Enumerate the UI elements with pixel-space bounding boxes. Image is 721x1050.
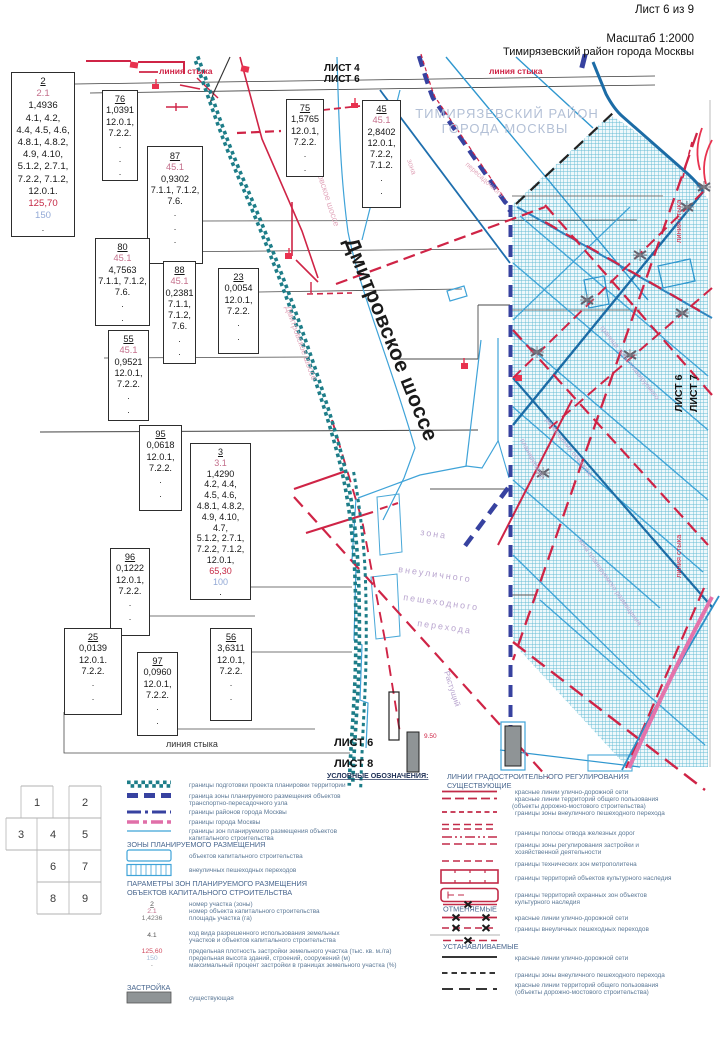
svg-text:граница зоны планируемого разм: граница зоны планируемого размещения объ… [189,792,341,800]
svg-text:зона: зона [405,158,419,177]
svg-text:ПАРАМЕТРЫ ЗОН ПЛАНИРУЕМОГО РАЗ: ПАРАМЕТРЫ ЗОН ПЛАНИРУЕМОГО РАЗМЕЩЕНИЯ [127,879,307,888]
svg-text:Тимирязевский район города Мос: Тимирязевский район города Москвы [503,46,694,58]
svg-text:красные линии территорий общег: красные линии территорий общего пользова… [515,981,659,989]
svg-text:7: 7 [82,861,88,873]
svg-text:4: 4 [50,829,56,841]
svg-text:границы зоны внеуличного пешех: границы зоны внеуличного пешеходного пер… [515,972,665,979]
svg-text:ОБЪЕКТОВ КАПИТАЛЬНОГО СТРОИТЕЛ: ОБЪЕКТОВ КАПИТАЛЬНОГО СТРОИТЕЛЬСТВА [127,888,292,897]
svg-text:внеуличного: внеуличного [398,564,473,584]
svg-text:ЗОНЫ ПЛАНИРУЕМОГО РАЗМЕЩЕНИЯ: ЗОНЫ ПЛАНИРУЕМОГО РАЗМЕЩЕНИЯ [127,840,265,849]
svg-text:культурного наследия: культурного наследия [515,899,580,906]
svg-text:предельная высота зданий, стро: предельная высота зданий, строений, соор… [189,954,350,962]
svg-text:9: 9 [82,893,88,905]
svg-text:ЛИСТ 6: ЛИСТ 6 [334,737,373,749]
svg-text:УСТАНАВЛИВАЕМЫЕ: УСТАНАВЛИВАЕМЫЕ [443,942,519,951]
svg-text:(объекты дорожно-мостового стр: (объекты дорожно-мостового строительства… [515,988,649,996]
svg-text:8: 8 [50,893,56,905]
svg-text:перехода: перехода [417,618,473,636]
svg-text:.: . [151,961,153,968]
svg-text:предельная плотность застройки: предельная плотность застройки земельног… [189,947,391,955]
svg-text:9.50: 9.50 [424,733,437,740]
svg-text:2: 2 [82,797,88,809]
svg-text:хозяйственной деятельности: хозяйственной деятельности [515,848,602,856]
svg-text:границы зоны внеуличного пешех: границы зоны внеуличного пешеходного пер… [515,810,665,817]
svg-text:1: 1 [34,797,40,809]
svg-text:ТИМИРЯЗЕВСКИЙ РАЙОН: ТИМИРЯЗЕВСКИЙ РАЙОН [415,106,599,121]
svg-text:границы районов города Москвы: границы районов города Москвы [189,808,287,816]
svg-text:границы подготовки проекта пла: границы подготовки проекта планировки те… [189,782,346,789]
svg-text:код вида разрешенного использо: код вида разрешенного использования земе… [189,930,340,937]
svg-text:границы полосы отвода железных: границы полосы отвода железных дорог [515,830,636,837]
svg-text:ЛИСТ 4: ЛИСТ 4 [324,63,360,74]
svg-text:пешеходного: пешеходного [403,592,480,613]
svg-text:существующая: существующая [189,995,234,1002]
svg-text:линия стыка: линия стыка [489,66,543,76]
svg-text:ЛИСТ 8: ЛИСТ 8 [334,758,373,770]
svg-text:границы территорий охранных зо: границы территорий охранных зон объектов [515,891,647,899]
svg-text:УСЛОВНЫЕ ОБОЗНАЧЕНИЯ:: УСЛОВНЫЕ ОБОЗНАЧЕНИЯ: [327,772,428,780]
svg-text:СУЩЕСТВУЮЩИЕ: СУЩЕСТВУЮЩИЕ [447,781,512,790]
svg-text:ЛИСТ 6: ЛИСТ 6 [324,74,360,85]
svg-text:максимальный процент застройки: максимальный процент застройки в граница… [189,961,397,969]
svg-text:красные линии улично-дорожной: красные линии улично-дорожной сети [515,914,629,922]
svg-text:ЛИСТ 7: ЛИСТ 7 [688,374,700,412]
svg-text:Масштаб 1:2000: Масштаб 1:2000 [606,33,694,45]
svg-text:линия стыка: линия стыка [159,66,213,76]
svg-text:ЛИНИИ ГРАДОСТРОИТЕЛЬНОГО РЕГУЛ: ЛИНИИ ГРАДОСТРОИТЕЛЬНОГО РЕГУЛИРОВАНИЯ [447,772,629,781]
svg-text:границы территорий объектов ку: границы территорий объектов культурного … [515,874,672,882]
svg-text:площадь участка (га): площадь участка (га) [189,915,252,922]
svg-text:125,60: 125,60 [142,948,163,955]
svg-text:линия стыка: линия стыка [674,534,683,578]
svg-text:участков и объектов капитально: участков и объектов капитального строите… [189,936,336,944]
svg-text:линия стыка: линия стыка [674,199,683,243]
svg-text:границы внеуличных пешеходных: границы внеуличных пешеходных переходов [515,926,649,933]
svg-text:границы зон планируемого разме: границы зон планируемого размещения объе… [189,827,338,835]
svg-text:границы зоны регулирования зас: границы зоны регулирования застройки и [515,841,639,849]
svg-text:номер объекта капитального стр: номер объекта капитального строительства [189,907,320,915]
svg-text:3: 3 [18,829,24,841]
svg-text:4.1: 4.1 [147,932,157,939]
svg-text:номер участка (зоны): номер участка (зоны) [189,901,253,908]
svg-text:Дмитровское шоссе: Дмитровское шоссе [339,234,442,444]
svg-text:границы технических зон метроп: границы технических зон метрополитена [515,861,637,868]
svg-text:красные линии территорий общег: красные линии территорий общего пользова… [515,795,659,803]
svg-text:2: 2 [150,901,154,908]
svg-text:Лист 6 из 9: Лист 6 из 9 [635,4,694,16]
svg-text:ЛИСТ 6: ЛИСТ 6 [673,374,685,412]
svg-text:линия стыка: линия стыка [166,739,218,749]
svg-text:границы города Москвы: границы города Москвы [189,819,261,826]
svg-text:6: 6 [50,861,56,873]
svg-text:5: 5 [82,829,88,841]
svg-text:красные линии улично-дорожной: красные линии улично-дорожной сети [515,954,629,962]
svg-text:(объекты дорожно-мостового стр: (объекты дорожно-мостового строительства… [512,802,646,810]
svg-text:объектов капитального строител: объектов капитального строительства [189,852,303,860]
svg-text:красные линии улично-дорожной: красные линии улично-дорожной сети [515,788,629,796]
svg-text:Растущий: Растущий [442,670,462,708]
svg-text:ЗАСТРОЙКА: ЗАСТРОЙКА [127,983,170,992]
svg-text:транспортно-пересадочного узла: транспортно-пересадочного узла [189,800,288,807]
svg-text:пересадочного: пересадочного [464,161,505,199]
svg-text:1,4236: 1,4236 [142,915,163,922]
svg-text:Дмитровское шоссе: Дмитровское шоссе [283,304,319,382]
svg-text:ГОРОДА МОСКВЫ: ГОРОДА МОСКВЫ [442,121,569,136]
svg-text:внеуличных пешеходных переходо: внеуличных пешеходных переходов [189,867,297,874]
svg-text:2.1: 2.1 [147,908,157,915]
svg-text:зона: зона [420,527,448,541]
